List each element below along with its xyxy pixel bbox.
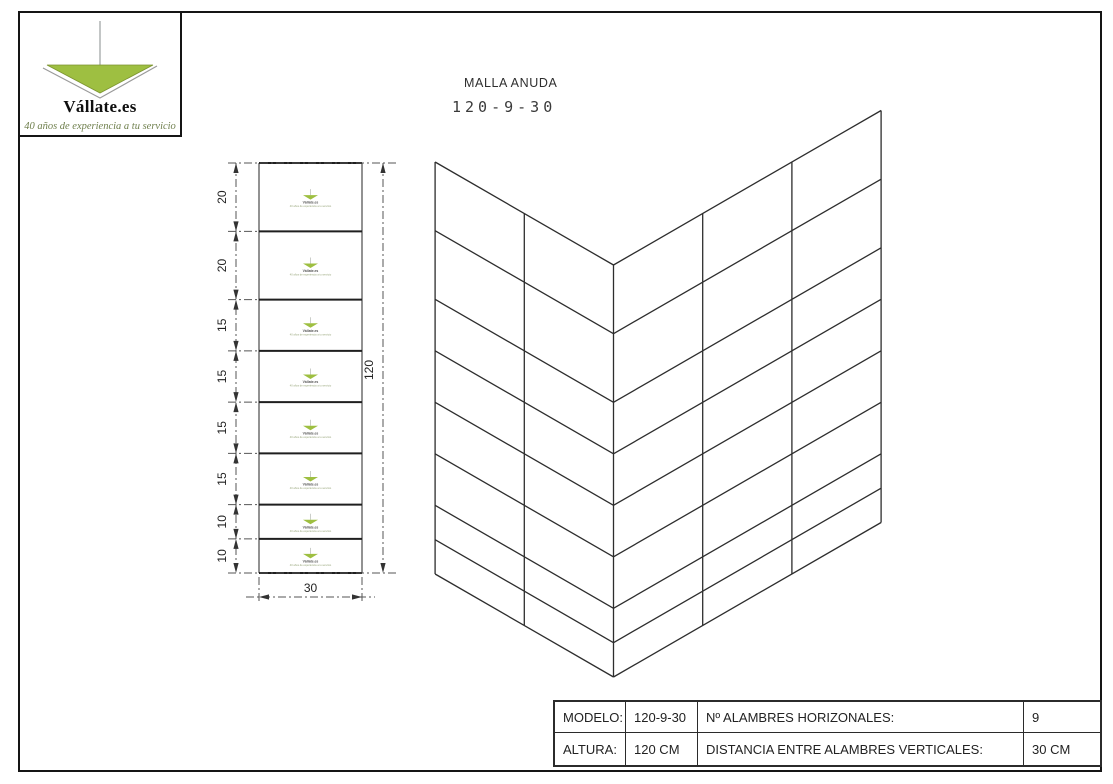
- svg-text:Vállate.es: Vállate.es: [303, 380, 319, 384]
- svg-text:15: 15: [215, 318, 229, 332]
- svg-text:20: 20: [215, 190, 229, 204]
- front-view-watermarks: Vállate.es40 años de experiencia a tu se…: [290, 189, 332, 567]
- svg-text:40 años de experiencia a tu se: 40 años de experiencia a tu servicio: [290, 435, 332, 439]
- svg-text:Vállate.es: Vállate.es: [303, 525, 319, 529]
- svg-text:15: 15: [215, 472, 229, 486]
- svg-text:20: 20: [215, 259, 229, 273]
- spec-label-altura: ALTURA:: [555, 733, 626, 765]
- svg-text:40 años de experiencia a tu se: 40 años de experiencia a tu servicio: [290, 273, 332, 277]
- svg-text:15: 15: [215, 421, 229, 435]
- svg-text:30: 30: [304, 581, 318, 595]
- spec-label-distancia-verticales: DISTANCIA ENTRE ALAMBRES VERTICALES:: [698, 733, 1024, 765]
- spec-value-alambres-horizontales: 9: [1024, 702, 1100, 733]
- svg-text:Vállate.es: Vállate.es: [303, 559, 319, 563]
- svg-text:Vállate.es: Vállate.es: [303, 201, 319, 205]
- svg-text:Vállate.es: Vállate.es: [303, 269, 319, 273]
- svg-text:Vállate.es: Vállate.es: [303, 329, 319, 333]
- svg-text:120: 120: [362, 360, 376, 380]
- front-view: [259, 163, 362, 573]
- svg-text:40 años de experiencia a tu se: 40 años de experiencia a tu servicio: [290, 204, 332, 208]
- drawing-page: Vállate.es 40 años de experiencia a tu s…: [0, 0, 1113, 784]
- svg-text:Vállate.es: Vállate.es: [303, 483, 319, 487]
- mesh-technical-drawing: Vállate.es40 años de experiencia a tu se…: [0, 0, 1113, 784]
- spec-label-alambres-horizontales: Nº ALAMBRES HORIZONALES:: [698, 702, 1024, 733]
- svg-text:40 años de experiencia a tu se: 40 años de experiencia a tu servicio: [290, 563, 332, 567]
- svg-text:15: 15: [215, 370, 229, 384]
- svg-text:Vállate.es: Vállate.es: [303, 431, 319, 435]
- spec-table: MODELO: 120-9-30 Nº ALAMBRES HORIZONALES…: [553, 700, 1102, 767]
- svg-text:40 años de experiencia a tu se: 40 años de experiencia a tu servicio: [290, 384, 332, 388]
- svg-text:40 años de experiencia a tu se: 40 años de experiencia a tu servicio: [290, 486, 332, 490]
- svg-text:40 años de experiencia a tu se: 40 años de experiencia a tu servicio: [290, 332, 332, 336]
- iso-view: [435, 111, 881, 678]
- spec-label-modelo: MODELO:: [555, 702, 626, 733]
- svg-text:10: 10: [215, 549, 229, 563]
- spec-value-modelo: 120-9-30: [626, 702, 698, 733]
- svg-text:40 años de experiencia a tu se: 40 años de experiencia a tu servicio: [290, 529, 332, 533]
- spec-value-altura: 120 CM: [626, 733, 698, 765]
- spec-value-distancia-verticales: 30 CM: [1024, 733, 1100, 765]
- svg-text:10: 10: [215, 515, 229, 529]
